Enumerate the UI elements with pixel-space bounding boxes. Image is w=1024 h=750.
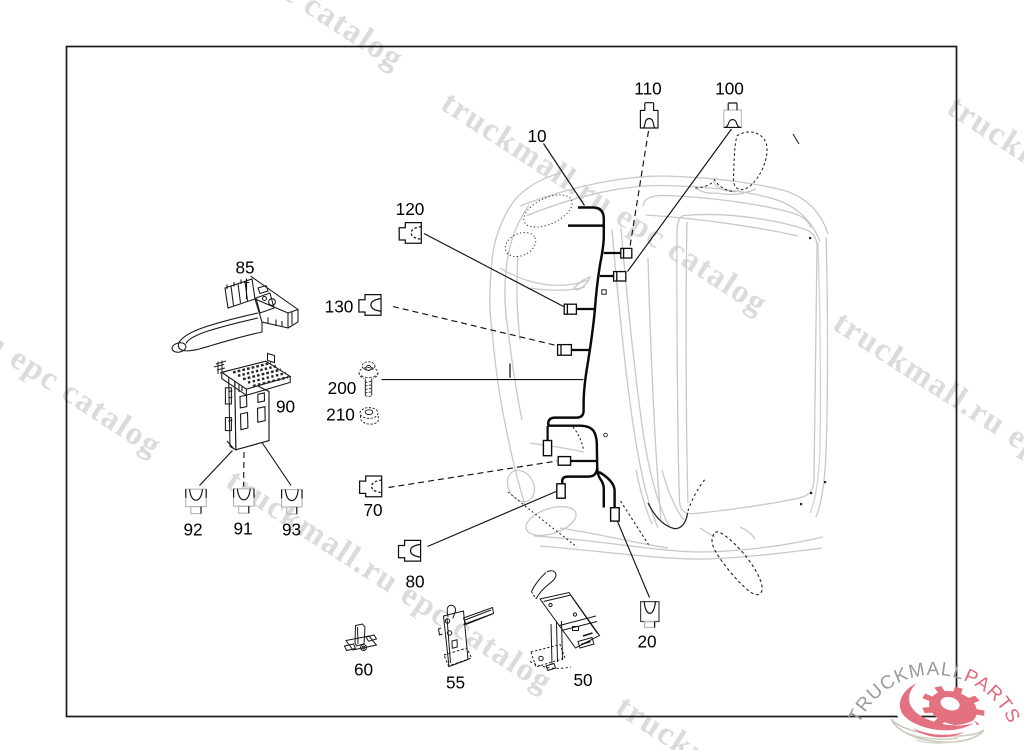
svg-text:90: 90 (276, 397, 295, 417)
svg-text:210: 210 (326, 405, 355, 425)
svg-text:91: 91 (233, 519, 252, 539)
svg-text:85: 85 (235, 258, 254, 278)
svg-text:120: 120 (396, 199, 425, 219)
svg-text:200: 200 (328, 378, 357, 398)
svg-text:60: 60 (354, 660, 373, 680)
svg-text:93: 93 (282, 520, 301, 540)
svg-text:110: 110 (634, 79, 661, 99)
svg-text:80: 80 (405, 572, 424, 592)
svg-text:10: 10 (527, 126, 546, 146)
svg-text:130: 130 (325, 297, 354, 317)
svg-text:50: 50 (573, 670, 592, 690)
svg-text:70: 70 (363, 500, 382, 520)
svg-text:92: 92 (183, 520, 202, 540)
svg-text:55: 55 (446, 673, 465, 693)
svg-text:100: 100 (715, 79, 744, 99)
svg-text:20: 20 (637, 632, 656, 652)
